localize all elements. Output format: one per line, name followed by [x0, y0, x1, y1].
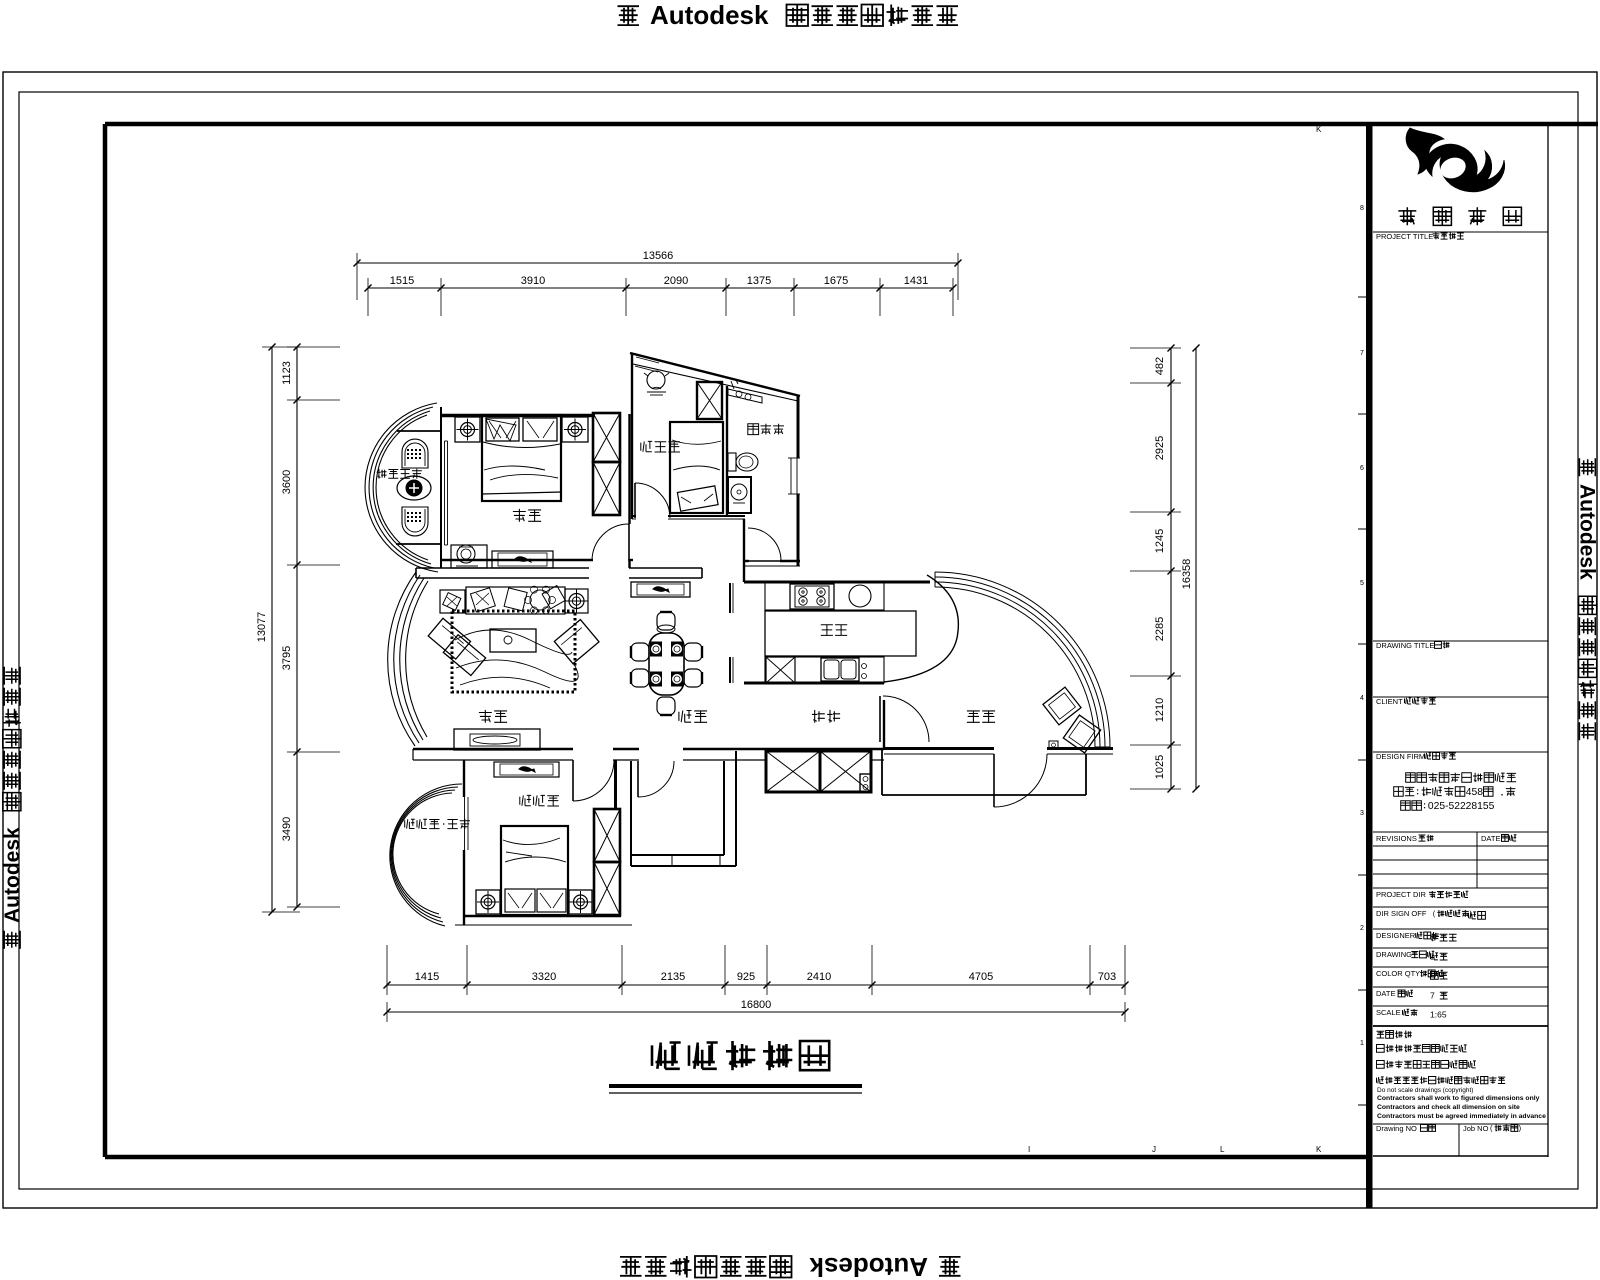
svg-text:1675: 1675 [824, 275, 848, 287]
svg-text:1210: 1210 [1154, 698, 1166, 722]
svg-text:CLIENT: CLIENT [1376, 697, 1403, 706]
svg-text:Autodesk: Autodesk [1576, 484, 1599, 580]
svg-text:3490: 3490 [281, 817, 293, 841]
svg-text:8: 8 [1360, 205, 1364, 212]
svg-text:Job NO: Job NO [1463, 1124, 1489, 1133]
svg-text:Contractors shall work to figu: Contractors shall work to figured dimens… [1377, 1095, 1540, 1102]
svg-text:SCALE: SCALE [1376, 1008, 1401, 1017]
svg-text:2090: 2090 [664, 275, 688, 287]
svg-text:DATE: DATE [1376, 989, 1395, 998]
svg-text:COLOR QTY: COLOR QTY [1376, 969, 1420, 978]
svg-text:K: K [1316, 125, 1322, 134]
svg-text:1:65: 1:65 [1430, 1009, 1447, 1019]
svg-text:16358: 16358 [1181, 559, 1193, 590]
svg-text:925: 925 [737, 971, 755, 983]
svg-text:2925: 2925 [1154, 436, 1166, 460]
svg-text:K: K [1316, 1145, 1322, 1154]
svg-text:482: 482 [1154, 357, 1166, 375]
svg-text:Drawing NO: Drawing NO [1376, 1124, 1417, 1133]
svg-text:Contractors must be agreed imm: Contractors must be agreed immediately i… [1377, 1113, 1546, 1120]
svg-text:DESIGNER: DESIGNER [1376, 931, 1416, 940]
svg-text:REVISIONS: REVISIONS [1376, 834, 1417, 843]
svg-text:2285: 2285 [1154, 617, 1166, 641]
svg-text:13077: 13077 [256, 612, 268, 643]
svg-text:PROJECT DIR: PROJECT DIR [1376, 890, 1426, 899]
svg-text:PROJECT TITLE: PROJECT TITLE [1376, 232, 1433, 241]
svg-text:3320: 3320 [532, 971, 556, 983]
svg-text:025-52228155: 025-52228155 [1428, 801, 1495, 812]
svg-text:1245: 1245 [1154, 529, 1166, 553]
svg-text:I: I [1028, 1145, 1030, 1154]
svg-text:1515: 1515 [390, 275, 414, 287]
svg-text:DESIGN FIRM: DESIGN FIRM [1376, 752, 1425, 761]
svg-text:3600: 3600 [281, 470, 293, 494]
svg-text:2410: 2410 [807, 971, 831, 983]
svg-text:16800: 16800 [741, 999, 772, 1011]
svg-text:Contractors and check all dime: Contractors and check all dimension on s… [1377, 1104, 1520, 1111]
svg-text:458: 458 [1466, 787, 1483, 798]
svg-text:3910: 3910 [521, 275, 545, 287]
svg-text:DRAWING: DRAWING [1376, 950, 1412, 959]
svg-text:4: 4 [1360, 695, 1364, 702]
svg-text:1: 1 [1360, 1040, 1364, 1047]
svg-text:J: J [1152, 1145, 1156, 1154]
svg-text:1431: 1431 [904, 275, 928, 287]
svg-text:DRAWING TITLE: DRAWING TITLE [1376, 641, 1434, 650]
svg-text:1025: 1025 [1154, 755, 1166, 779]
svg-text:Autodesk: Autodesk [650, 0, 769, 30]
svg-text:6: 6 [1360, 465, 1364, 472]
svg-text:Autodesk: Autodesk [1, 827, 24, 923]
svg-text:7: 7 [1430, 990, 1435, 1000]
svg-text:2: 2 [1360, 925, 1364, 932]
svg-text:2135: 2135 [661, 971, 685, 983]
svg-text:703: 703 [1098, 971, 1116, 983]
svg-text:1415: 1415 [415, 971, 439, 983]
svg-text:4705: 4705 [969, 971, 993, 983]
svg-text:DATE: DATE [1481, 834, 1500, 843]
svg-text:3795: 3795 [281, 646, 293, 670]
svg-text:Do not scale drawings (copyrig: Do not scale drawings (copyright) [1377, 1087, 1473, 1094]
svg-text:1123: 1123 [281, 361, 293, 385]
svg-text:13566: 13566 [643, 250, 674, 262]
svg-text:3: 3 [1360, 810, 1364, 817]
svg-text:L: L [1220, 1145, 1225, 1154]
svg-text:7: 7 [1360, 350, 1364, 357]
svg-text:5: 5 [1360, 580, 1364, 587]
svg-text:1375: 1375 [747, 275, 771, 287]
svg-text:DIR SIGN OFF: DIR SIGN OFF [1376, 909, 1427, 918]
svg-text:Autodesk: Autodesk [809, 1252, 928, 1280]
